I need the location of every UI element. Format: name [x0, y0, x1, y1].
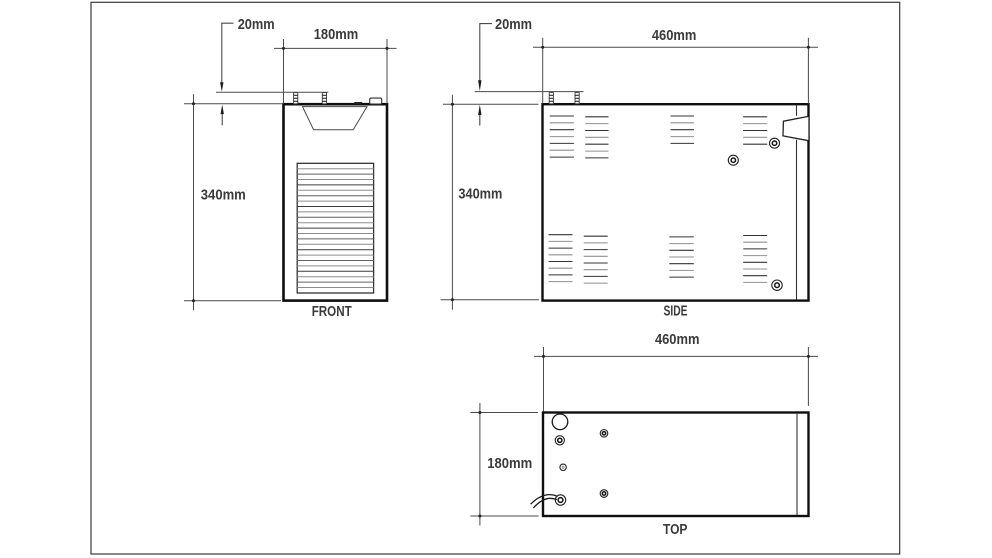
svg-text:180mm: 180mm [314, 27, 359, 43]
svg-text:20mm: 20mm [495, 17, 532, 33]
svg-text:180mm: 180mm [487, 456, 532, 472]
svg-text:TOP: TOP [663, 521, 688, 538]
svg-text:460mm: 460mm [655, 332, 700, 348]
svg-text:340mm: 340mm [458, 187, 502, 203]
svg-text:FRONT: FRONT [312, 303, 353, 320]
svg-text:20mm: 20mm [238, 17, 275, 33]
svg-text:SIDE: SIDE [664, 303, 688, 320]
svg-text:340mm: 340mm [201, 188, 246, 204]
svg-text:460mm: 460mm [652, 28, 697, 44]
